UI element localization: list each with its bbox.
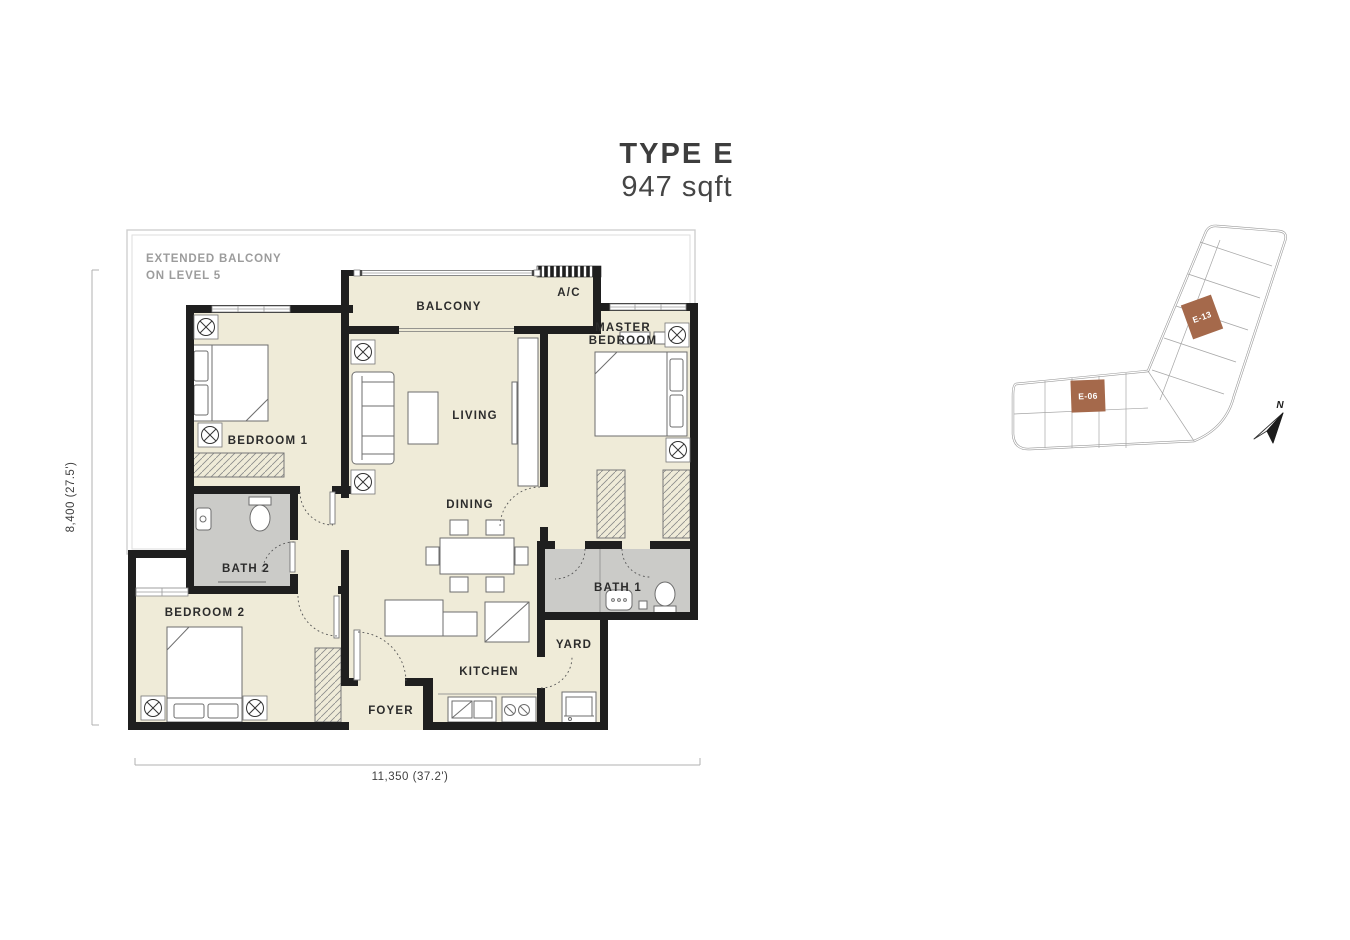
wardrobe-bed2 (315, 648, 341, 722)
plan-type-title: TYPE E (517, 138, 837, 170)
balcony-sliding-door (399, 327, 514, 334)
ceiling-fan-icon (198, 423, 222, 447)
room-label-kitchen: KITCHEN (459, 666, 519, 678)
ceiling-fan-icon (194, 315, 218, 339)
height-dimension-label: 8,400 (27.5') (65, 462, 77, 533)
room-label-bath1: BATH 1 (594, 582, 642, 594)
key-plan: E-13 E-06 N (1000, 215, 1300, 460)
room-label-foyer: FOYER (368, 705, 414, 717)
wardrobe-master-left (597, 470, 625, 538)
master-window (610, 304, 686, 310)
title-block: TYPE E 947 sqft (517, 138, 837, 204)
wardrobe-master-right (663, 470, 690, 538)
balcony-window (354, 270, 540, 276)
unit-e06-marker: E-06 (1070, 379, 1105, 412)
room-label-dining: DINING (446, 499, 493, 511)
ceiling-fan-icon (351, 340, 375, 364)
room-label-bath2: BATH 2 (222, 563, 270, 575)
ceiling-fan-icon (141, 696, 165, 720)
ceiling-fan-icon (351, 470, 375, 494)
room-label-bedroom2: BEDROOM 2 (165, 607, 245, 619)
key-plan-building-outline (1013, 226, 1286, 449)
stove-symbol (502, 697, 536, 722)
coffee-table-symbol (408, 392, 438, 444)
room-label-bedroom1: BEDROOM 1 (228, 435, 308, 447)
unit-e06-label: E-06 (1078, 391, 1098, 402)
ceiling-fan-icon (665, 323, 689, 347)
sofa-symbol (352, 372, 394, 464)
room-label-ac: A/C (557, 287, 580, 299)
floor-plan-canvas: 8,400 (27.5') 11,350 (37.2') EXTENDED BA… (50, 220, 710, 800)
north-label: N (1276, 400, 1284, 411)
extended-balcony-note-line1: EXTENDED BALCONY (146, 253, 281, 265)
room-label-living: LIVING (452, 410, 498, 422)
bed1-symbol (190, 345, 268, 421)
room-label-master-2: BEDROOM (589, 335, 657, 347)
north-arrow-icon: N (1254, 400, 1284, 443)
bedroom1-window (212, 306, 290, 312)
room-label-yard: YARD (556, 639, 592, 651)
washer-symbol (562, 692, 596, 723)
bed2-symbol (167, 627, 242, 722)
floorplan-page: TYPE E 947 sqft (0, 0, 1350, 940)
ceiling-fan-icon (243, 696, 267, 720)
bedroom2-window (136, 588, 188, 596)
plan-area-label: 947 sqft (517, 170, 837, 204)
room-label-balcony: BALCONY (416, 301, 481, 313)
wardrobe-bed1 (192, 453, 284, 477)
ceiling-fan-icon (666, 438, 690, 462)
extended-balcony-note-line2: ON LEVEL 5 (146, 270, 221, 282)
width-dimension-label: 11,350 (37.2') (372, 771, 449, 783)
room-label-master-1: MASTER (595, 322, 651, 334)
